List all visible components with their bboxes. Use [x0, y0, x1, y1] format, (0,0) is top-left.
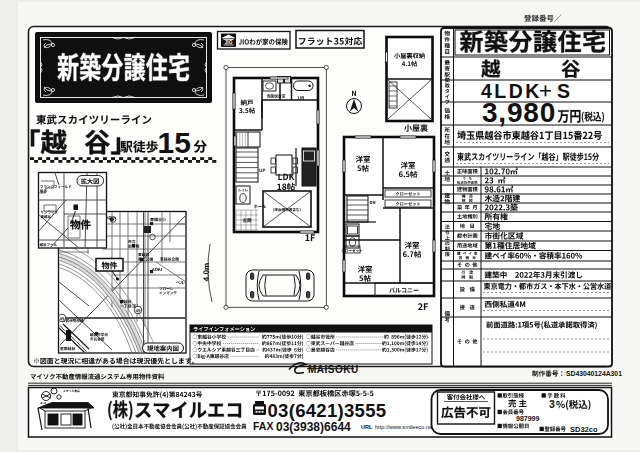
- svg-text:SD43040124A301: SD43040124A301: [566, 370, 622, 377]
- svg-text:URL: URL: [361, 424, 373, 430]
- svg-text:3,980: 3,980: [482, 97, 556, 128]
- svg-text:JIO: JIO: [225, 40, 233, 45]
- svg-text:15: 15: [158, 126, 191, 159]
- svg-text:FAX: FAX: [253, 420, 273, 432]
- svg-text:http://www.smileeco.net: http://www.smileeco.net: [375, 424, 434, 430]
- svg-text:987999: 987999: [516, 415, 539, 422]
- svg-text:03(3938)6644: 03(3938)6644: [276, 420, 351, 434]
- svg-text:S: S: [557, 80, 570, 102]
- svg-text:3: 3: [549, 398, 555, 410]
- svg-text:03(6421)3555: 03(6421)3555: [268, 400, 387, 421]
- svg-text:SD32co: SD32co: [570, 425, 598, 434]
